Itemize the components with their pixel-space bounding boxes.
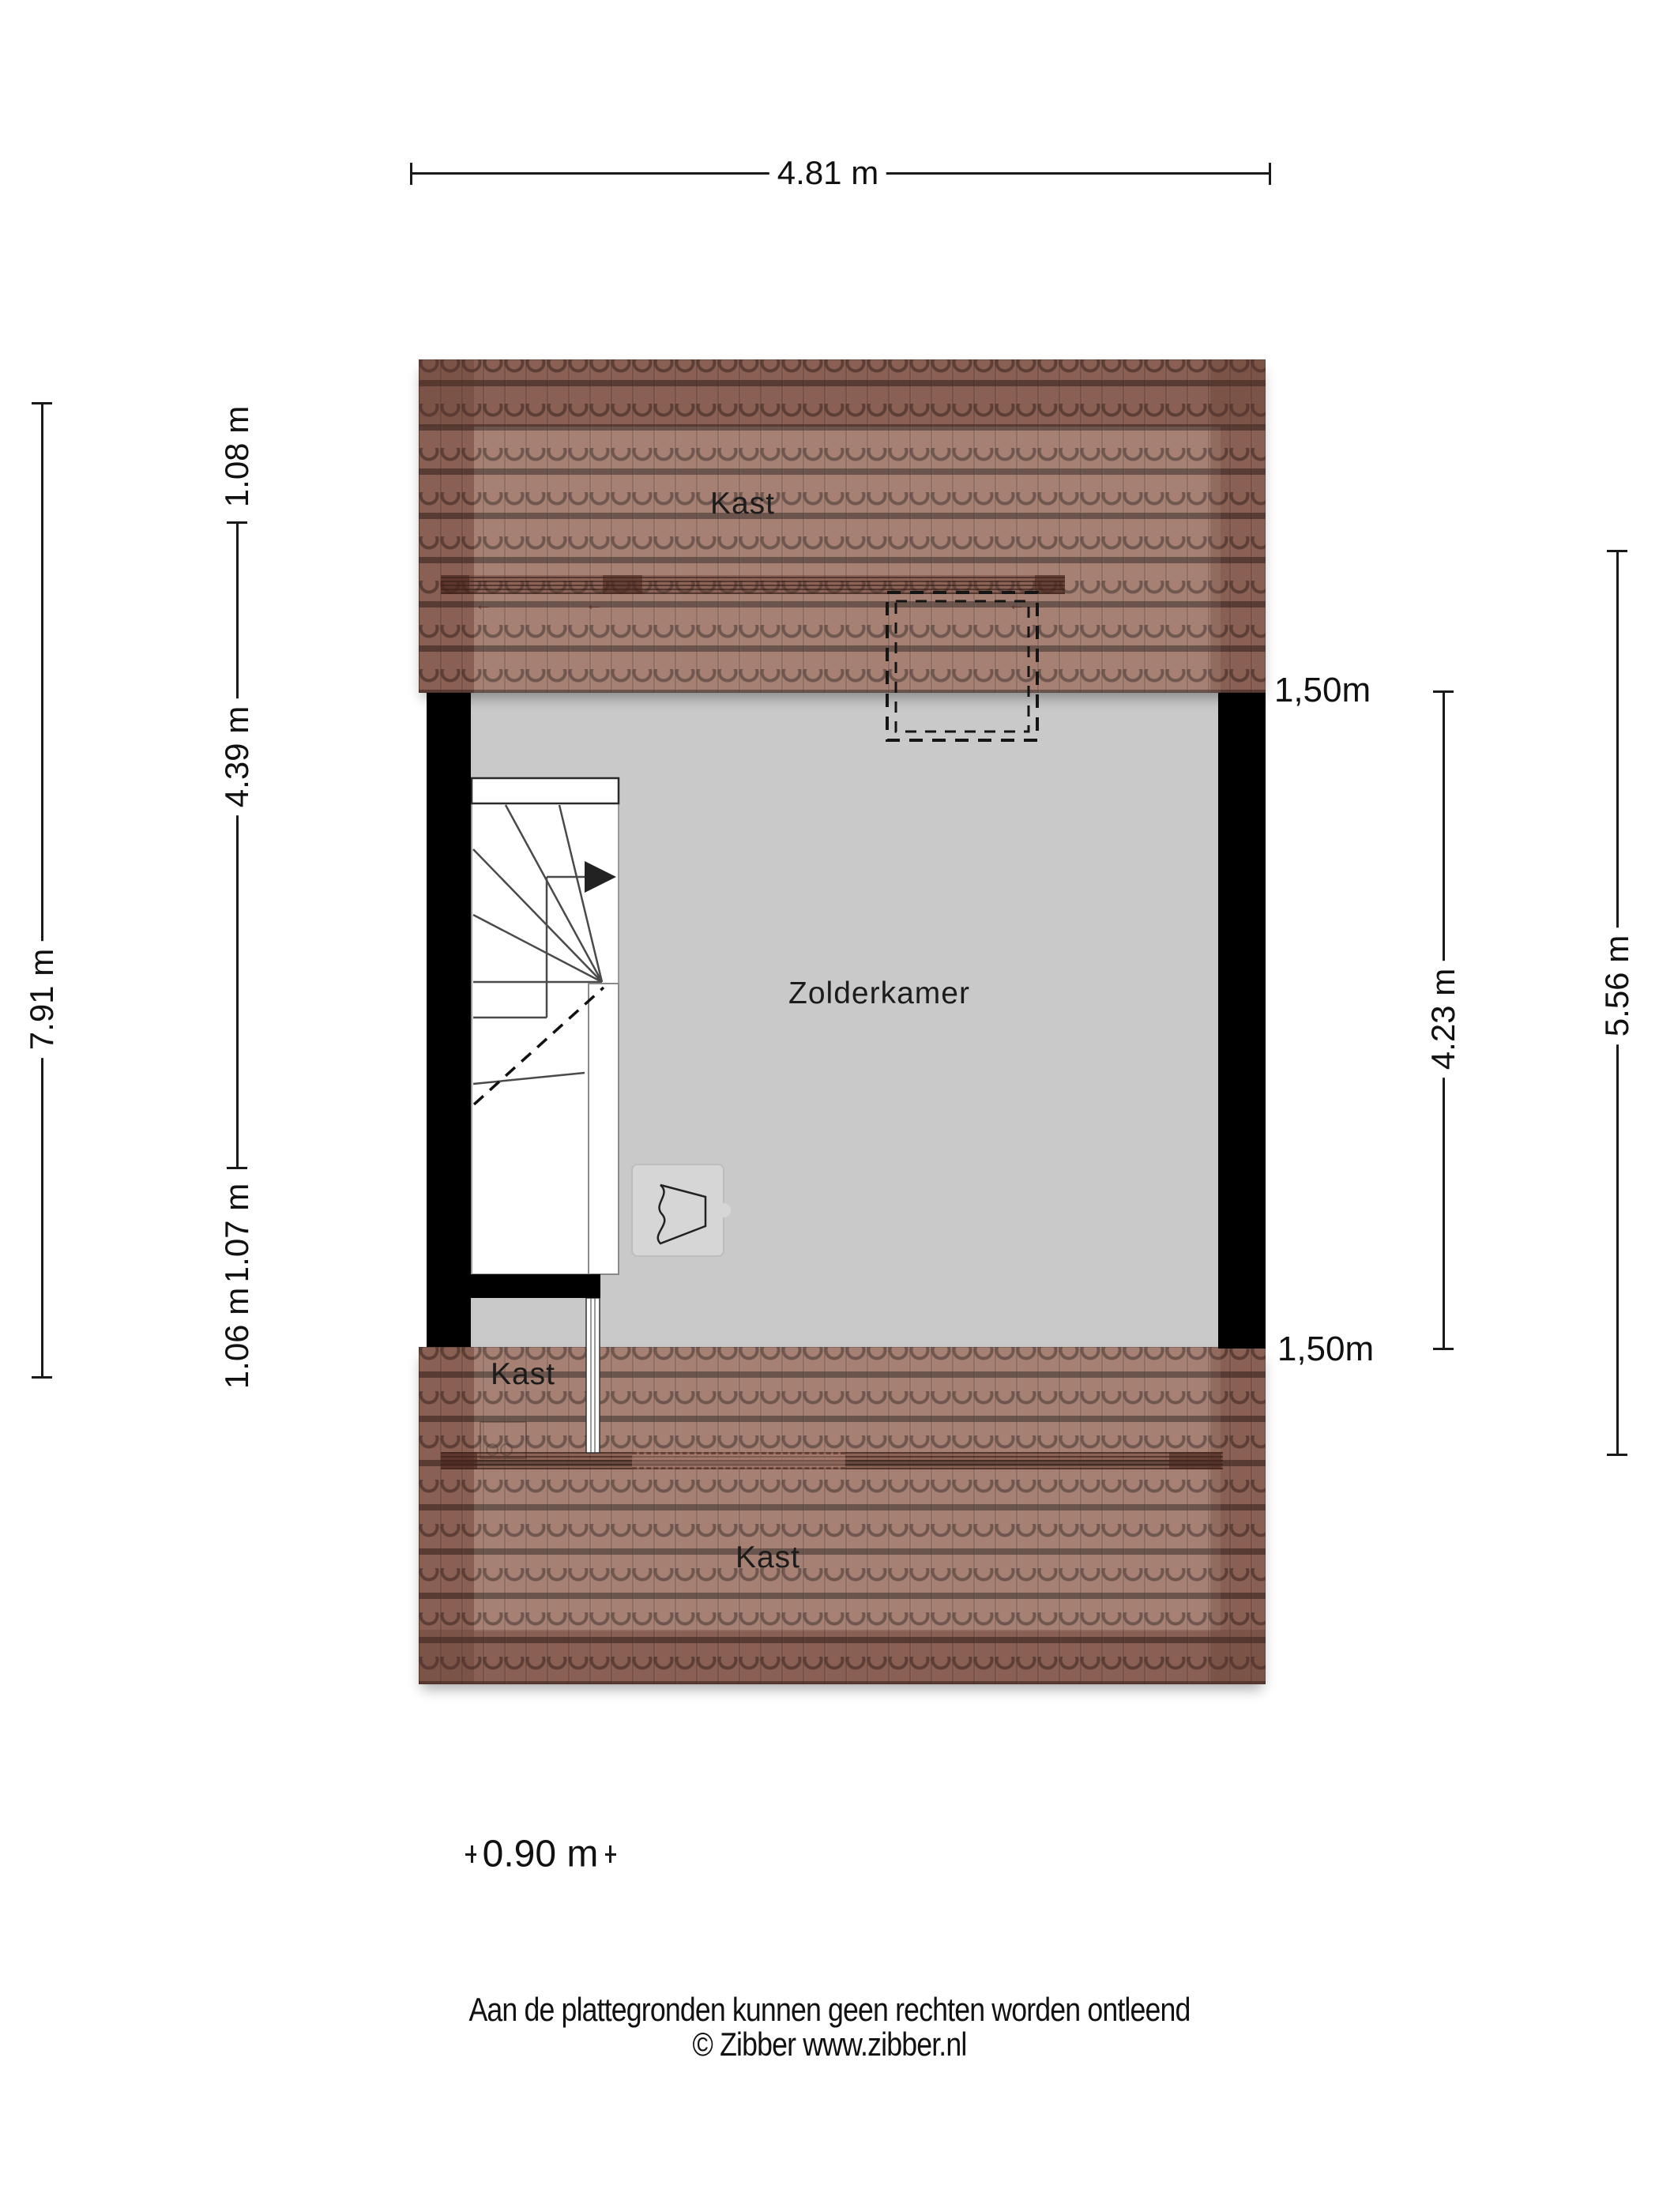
room-label-kast-top: Kast	[710, 487, 775, 521]
dim-label-left-seg3: 1.07 m	[216, 1176, 258, 1292]
roof-bottom-height-band	[441, 1452, 1223, 1469]
roof-bottom-inner-zone	[474, 1347, 1221, 1631]
roof-top-height-band	[441, 575, 1065, 594]
dim-tick	[1433, 1348, 1454, 1350]
opening-arrow-icon: ←	[1008, 594, 1025, 615]
floorplan-page: ← ← ←	[0, 0, 1659, 2212]
roof-bottom-right-shade	[1210, 1347, 1266, 1684]
opening-arrow-icon: ←	[475, 594, 492, 615]
dim-label-right-inner: 4.23 m	[1423, 961, 1464, 1078]
dim-tick	[1607, 550, 1627, 552]
footer-credit: © Zibber www.zibber.nl	[125, 2026, 1535, 2063]
dim-tick	[471, 1845, 473, 1863]
dim-tick	[32, 1376, 52, 1379]
dim-label-right-outer: 5.56 m	[1597, 927, 1638, 1044]
left-wall	[427, 693, 471, 1347]
knee-wall-height-label-top: 1,50m	[1266, 669, 1379, 712]
roof-bottom-left-shade	[419, 1347, 474, 1684]
roof-top-left-shade	[419, 359, 474, 693]
dim-tick	[1269, 163, 1271, 185]
closet-partition-wall	[462, 1274, 600, 1298]
band-block	[603, 575, 642, 594]
roof-bottom-eave-shade	[419, 1630, 1266, 1684]
band-dashed-section	[632, 1452, 845, 1469]
dim-label-left-seg4: 1.06 m	[216, 1280, 258, 1397]
roof-top-inner-zone	[474, 427, 1221, 693]
dim-tick	[410, 163, 412, 185]
room-label-kast-bottom: Kast	[735, 1540, 800, 1575]
roof-top-right-shade	[1210, 359, 1266, 693]
dim-label-top-width: 4.81 m	[769, 152, 886, 194]
dim-label-left-seg1: 1.08 m	[216, 398, 258, 515]
room-label-zolderkamer: Zolderkamer	[788, 976, 970, 1011]
attic-floor-area	[427, 693, 1266, 1349]
band-block	[1169, 1452, 1221, 1469]
dim-left-seg2-line	[236, 522, 239, 1169]
dim-tick	[1607, 1454, 1627, 1456]
band-block	[1035, 575, 1065, 594]
opening-arrow-icon: ←	[585, 594, 603, 615]
dim-label-left-seg2: 4.39 m	[216, 698, 258, 815]
dim-left-total-line	[41, 403, 43, 1379]
knee-wall-height-label-bottom: 1,50m	[1270, 1328, 1382, 1371]
dim-tick	[32, 402, 52, 404]
dim-tick	[1433, 690, 1454, 693]
band-block	[441, 575, 469, 594]
room-label-kast-left: Kast	[491, 1357, 555, 1392]
dim-tick	[609, 1845, 611, 1863]
band-block	[441, 1452, 477, 1469]
dim-label-left-total: 7.91 m	[21, 941, 62, 1058]
dim-tick	[227, 521, 247, 524]
dim-tick	[227, 1167, 247, 1169]
right-wall	[1218, 693, 1266, 1349]
dim-label-stair-width: 0.90 m	[478, 1831, 604, 1878]
roof-top-ridge-shade	[419, 359, 1266, 427]
footer-disclaimer: Aan de plattegronden kunnen geen rechten…	[125, 1991, 1535, 2029]
